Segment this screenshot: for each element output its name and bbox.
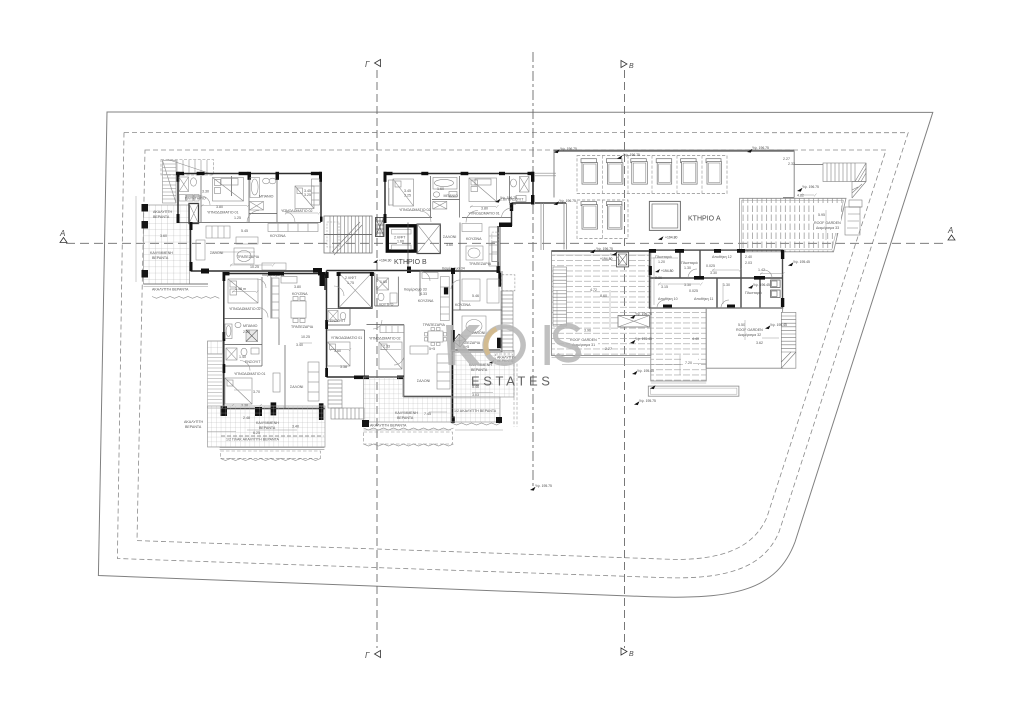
svg-text:ΕΝΣΟΥΙΤ: ΕΝΣΟΥΙΤ bbox=[245, 360, 261, 364]
svg-text:0.025: 0.025 bbox=[706, 264, 715, 268]
svg-text:5.45: 5.45 bbox=[241, 229, 248, 233]
svg-text:ΛΟΥΤΡΟ: ΛΟΥΤΡΟ bbox=[379, 303, 394, 307]
svg-text:ΥΠΝΟΔΩΜΑΤΙΟ 01: ΥΠΝΟΔΩΜΑΤΙΟ 01 bbox=[468, 212, 500, 216]
svg-text:5.95: 5.95 bbox=[818, 213, 825, 217]
svg-text:ΤΡΑΠΕΖΑΡΙΑ: ΤΡΑΠΕΖΑΡΙΑ bbox=[237, 255, 260, 259]
svg-text:Γ: Γ bbox=[365, 651, 370, 660]
svg-text:ΒΕΡΑΝΤΑ: ΒΕΡΑΝΤΑ bbox=[397, 416, 414, 420]
svg-text:2.33: 2.33 bbox=[383, 345, 390, 349]
svg-text:3.96: 3.96 bbox=[584, 329, 591, 333]
svg-text:Υψ. 196.75: Υψ. 196.75 bbox=[559, 199, 576, 203]
svg-text:ΒΕΡΑΝΤΑ: ΒΕΡΑΝΤΑ bbox=[152, 256, 169, 260]
svg-text:1.25: 1.25 bbox=[234, 216, 241, 220]
svg-text:Υψ. 196.75: Υψ. 196.75 bbox=[596, 247, 613, 251]
svg-text:ΚΟΥΖΙΝΑ: ΚΟΥΖΙΝΑ bbox=[455, 303, 471, 307]
svg-text:Υψ. 195.75: Υψ. 195.75 bbox=[639, 399, 656, 403]
svg-text:ΣΑΛΟΝΙ: ΣΑΛΟΝΙ bbox=[443, 235, 456, 239]
svg-text:1.60: 1.60 bbox=[397, 240, 404, 244]
svg-text:ΥΠΝΟΔΩΜΑΤΙΟ 01: ΥΠΝΟΔΩΜΑΤΙΟ 01 bbox=[207, 211, 239, 215]
svg-text:Υψ. 196.75: Υψ. 196.75 bbox=[635, 312, 652, 316]
svg-text:2.03: 2.03 bbox=[745, 261, 752, 265]
svg-text:1.42: 1.42 bbox=[758, 268, 765, 272]
svg-text:ΣΑΛΟΝΙ: ΣΑΛΟΝΙ bbox=[290, 385, 303, 389]
svg-text:Αποθήκη 11: Αποθήκη 11 bbox=[694, 297, 713, 301]
svg-text:ΑΚΑΛΥΠΤΗ: ΑΚΑΛΥΠΤΗ bbox=[153, 210, 173, 214]
svg-text:ΕΝΣΟΥΙΤ: ΕΝΣΟΥΙΤ bbox=[330, 319, 346, 323]
svg-text:Υψ. 196.45: Υψ. 196.45 bbox=[753, 283, 770, 287]
svg-text:2.40: 2.40 bbox=[745, 255, 752, 259]
svg-text:5.50: 5.50 bbox=[738, 323, 745, 327]
svg-text:ΑΚΑΛΥΠΤΗ ΒΕΡΑΝΤΑ: ΑΚΑΛΥΠΤΗ ΒΕΡΑΝΤΑ bbox=[152, 288, 189, 292]
svg-text:+194.30: +194.30 bbox=[379, 259, 391, 263]
svg-text:Υψ. 195.45: Υψ. 195.45 bbox=[770, 323, 787, 327]
svg-text:Αποθήκη 10: Αποθήκη 10 bbox=[658, 297, 678, 301]
svg-text:Υψ. 196.75: Υψ. 196.75 bbox=[623, 153, 640, 157]
svg-text:Πλυσταριό: Πλυσταριό bbox=[681, 261, 698, 265]
svg-text:3.15: 3.15 bbox=[661, 285, 668, 289]
svg-text:4.40: 4.40 bbox=[692, 337, 699, 341]
svg-text:ROOF GARDEN: ROOF GARDEN bbox=[814, 221, 841, 225]
svg-text:ΤΡΑΠΕΖΑΡΙΑ: ΤΡΑΠΕΖΑΡΙΑ bbox=[291, 325, 314, 329]
svg-text:+194.80: +194.80 bbox=[665, 236, 677, 240]
svg-text:ΒΕΡΑΝΤΑ: ΒΕΡΑΝΤΑ bbox=[185, 425, 202, 429]
svg-text:ΥΠΝΟΔΩΜΑΤΙΟ 01: ΥΠΝΟΔΩΜΑΤΙΟ 01 bbox=[331, 336, 363, 340]
svg-text:Αποθήκη 12: Αποθήκη 12 bbox=[712, 255, 732, 259]
svg-text:ΚΟΥΖΙΝΑ: ΚΟΥΖΙΝΑ bbox=[292, 292, 308, 296]
svg-text:3.80: 3.80 bbox=[294, 285, 301, 289]
svg-text:3.80: 3.80 bbox=[481, 207, 488, 211]
svg-text:ΚΟΥΖΙΝΑ: ΚΟΥΖΙΝΑ bbox=[418, 299, 434, 303]
svg-text:ΜΠΑΝΙΟ: ΜΠΑΝΙΟ bbox=[243, 324, 258, 328]
svg-text:2.25: 2.25 bbox=[243, 330, 250, 334]
svg-text:1.75: 1.75 bbox=[347, 281, 354, 285]
svg-text:2.27: 2.27 bbox=[783, 157, 790, 161]
svg-text:ΒΕΡΑΝΤΑ: ΒΕΡΑΝΤΑ bbox=[471, 368, 488, 372]
svg-text:Πλυσταριό: Πλυσταριό bbox=[745, 291, 762, 295]
svg-text:1.40: 1.40 bbox=[239, 355, 246, 359]
svg-text:8.60: 8.60 bbox=[600, 294, 607, 298]
svg-text:B: B bbox=[629, 651, 634, 658]
svg-text:Υψ. 196.75: Υψ. 196.75 bbox=[560, 147, 577, 151]
svg-text:Υψ. 195.75: Υψ. 195.75 bbox=[535, 484, 552, 488]
svg-text:ΜΠΑΝΙΟ: ΜΠΑΝΙΟ bbox=[444, 194, 459, 198]
svg-text:2.48: 2.48 bbox=[243, 416, 250, 420]
svg-text:3.25: 3.25 bbox=[304, 193, 311, 197]
svg-text:ΥΠΝΟΔΩΜΑΤΙΟ 02: ΥΠΝΟΔΩΜΑΤΙΟ 02 bbox=[229, 307, 261, 311]
svg-text:1/2 ΑΚΑΛΥΠΤΗ ΒΕΡΑΝΤΑ: 1/2 ΑΚΑΛΥΠΤΗ ΒΕΡΑΝΤΑ bbox=[454, 409, 497, 413]
svg-text:ΒΕΡΑΝΤΑ: ΒΕΡΑΝΤΑ bbox=[153, 215, 170, 219]
svg-text:2.36: 2.36 bbox=[655, 276, 662, 280]
svg-text:ΠΛΥΝΤΗΡΙΟ: ΠΛΥΝΤΗΡΙΟ bbox=[185, 197, 206, 201]
svg-text:5+5: 5+5 bbox=[429, 347, 435, 351]
svg-text:7.20: 7.20 bbox=[685, 361, 692, 365]
svg-text:Υψ. 195.45: Υψ. 195.45 bbox=[635, 337, 652, 341]
svg-text:3.60: 3.60 bbox=[446, 243, 453, 247]
svg-text:ΤΡΑΠΕΖΑΡΙΑ: ΤΡΑΠΕΖΑΡΙΑ bbox=[423, 323, 446, 327]
svg-text:1.20: 1.20 bbox=[658, 260, 665, 264]
svg-text:ΒΕΡΑΝΤΑ: ΒΕΡΑΝΤΑ bbox=[259, 426, 276, 430]
svg-text:5.30: 5.30 bbox=[509, 202, 516, 206]
svg-text:6.25: 6.25 bbox=[253, 431, 260, 435]
svg-text:5.46: 5.46 bbox=[472, 294, 479, 298]
svg-text:Υψ. 196.75: Υψ. 196.75 bbox=[802, 185, 819, 189]
svg-text:B: B bbox=[629, 63, 634, 70]
svg-text:+194.80: +194.80 bbox=[661, 269, 673, 273]
svg-text:3.03: 3.03 bbox=[472, 393, 479, 397]
svg-text:ΥΠΝΟΔΩΜΑΤΙΟ 02: ΥΠΝΟΔΩΜΑΤΙΟ 02 bbox=[399, 208, 431, 212]
svg-text:1.30: 1.30 bbox=[684, 266, 691, 270]
svg-text:4.72: 4.72 bbox=[590, 288, 597, 292]
svg-text:0.025: 0.025 bbox=[689, 289, 698, 293]
svg-text:ΣΑΛΟΝΙ: ΣΑΛΟΝΙ bbox=[417, 379, 430, 383]
svg-text:3.40: 3.40 bbox=[296, 343, 303, 347]
svg-text:Πλυσταριό: Πλυσταριό bbox=[655, 255, 672, 259]
svg-text:3.38: 3.38 bbox=[340, 365, 347, 369]
svg-text:2 ΛΙΦΤ: 2 ΛΙΦΤ bbox=[345, 276, 357, 280]
svg-text:ΚΤΗΡΙΟ B: ΚΤΗΡΙΟ B bbox=[394, 259, 427, 266]
svg-text:ΚΟΥΖΙΝΑ: ΚΟΥΖΙΝΑ bbox=[270, 234, 286, 238]
svg-text:1.65: 1.65 bbox=[380, 280, 387, 284]
svg-text:3.30: 3.30 bbox=[684, 283, 691, 287]
svg-text:Υψ. 196.75: Υψ. 196.75 bbox=[500, 196, 517, 200]
svg-text:1.60: 1.60 bbox=[437, 187, 444, 191]
svg-text:ΑΚΑΛΥΠΤΗ ΒΕΡΑΝΤΑ: ΑΚΑΛΥΠΤΗ ΒΕΡΑΝΤΑ bbox=[370, 424, 407, 428]
svg-text:Υψ. 195.45: Υψ. 195.45 bbox=[793, 260, 810, 264]
svg-text:3.62: 3.62 bbox=[756, 341, 763, 345]
svg-text:ΚΑΛΥΜΜΕΝΗ: ΚΑΛΥΜΜΕΝΗ bbox=[395, 411, 418, 415]
svg-text:Διαμέρισμα 33: Διαμέρισμα 33 bbox=[816, 226, 839, 230]
svg-text:ΤΡΑΠΕΖΑΡΙΑ: ΤΡΑΠΕΖΑΡΙΑ bbox=[469, 262, 492, 266]
svg-text:3.45: 3.45 bbox=[404, 189, 411, 193]
svg-text:1.30: 1.30 bbox=[723, 283, 730, 287]
svg-text:ROOF GARDEN: ROOF GARDEN bbox=[736, 328, 763, 332]
svg-text:ΥΠΝΟΔΩΜΑΤΙΟ 02: ΥΠΝΟΔΩΜΑΤΙΟ 02 bbox=[281, 209, 313, 213]
svg-text:10.25: 10.25 bbox=[250, 265, 259, 269]
svg-text:Γ: Γ bbox=[365, 60, 370, 69]
svg-text:7.45: 7.45 bbox=[424, 412, 431, 416]
svg-text:4.12: 4.12 bbox=[797, 194, 804, 198]
svg-text:ΚΑΛΥΜΜΕΝΗ: ΚΑΛΥΜΜΕΝΗ bbox=[150, 251, 173, 255]
svg-text:Υψ. 196.75: Υψ. 196.75 bbox=[752, 146, 769, 150]
svg-text:A: A bbox=[59, 229, 65, 238]
svg-text:Υψ. 195.45: Υψ. 195.45 bbox=[637, 369, 654, 373]
svg-text:10.25: 10.25 bbox=[301, 335, 310, 339]
svg-text:3.48 m: 3.48 m bbox=[235, 287, 246, 291]
svg-text:3.30: 3.30 bbox=[710, 271, 717, 275]
svg-text:ESTATES: ESTATES bbox=[471, 374, 554, 389]
svg-text:ΚΑΛΥΜΜΕΝΗ: ΚΑΛΥΜΜΕΝΗ bbox=[256, 421, 279, 425]
svg-text:διαμέρισμα 33: διαμέρισμα 33 bbox=[404, 288, 427, 292]
svg-text:ROOF GARDEN: ROOF GARDEN bbox=[570, 338, 597, 342]
svg-text:+194.80: +194.80 bbox=[600, 257, 612, 261]
svg-text:A: A bbox=[947, 226, 953, 235]
svg-text:ΚΟΥΖΙΝΑ: ΚΟΥΖΙΝΑ bbox=[466, 237, 482, 241]
svg-text:ΜΠΑΝΙΟ: ΜΠΑΝΙΟ bbox=[259, 195, 274, 199]
svg-text:ΣΑΛΟΝΙ: ΣΑΛΟΝΙ bbox=[210, 251, 223, 255]
svg-text:3.30: 3.30 bbox=[202, 190, 209, 194]
svg-text:4.33: 4.33 bbox=[420, 292, 427, 296]
svg-text:3.70: 3.70 bbox=[253, 390, 260, 394]
svg-text:ΑΚΑΛΥΠΤΗ: ΑΚΑΛΥΠΤΗ bbox=[184, 420, 204, 424]
svg-text:3.25: 3.25 bbox=[404, 194, 411, 198]
svg-text:2.27: 2.27 bbox=[605, 347, 612, 351]
svg-text:3.40: 3.40 bbox=[292, 425, 299, 429]
svg-text:ΚΤΗΡΙΟ A: ΚΤΗΡΙΟ A bbox=[688, 216, 721, 223]
svg-text:ΥΠΝΟΔΩΜΑΤΙΟ 01: ΥΠΝΟΔΩΜΑΤΙΟ 01 bbox=[234, 372, 266, 376]
svg-text:3.60: 3.60 bbox=[160, 234, 167, 238]
svg-text:ΥΠΝΟΔΩΜΑΤΙΟ 02: ΥΠΝΟΔΩΜΑΤΙΟ 02 bbox=[369, 337, 401, 341]
svg-text:1/2 ΠΛΑΚ ΑΚΑΛΥΠΤΗ ΒΕΡΑΝΤΑ: 1/2 ΠΛΑΚ ΑΚΑΛΥΠΤΗ ΒΕΡΑΝΤΑ bbox=[226, 438, 280, 442]
svg-text:Διαμέρισμα 32: Διαμέρισμα 32 bbox=[738, 333, 761, 337]
svg-text:2.32: 2.32 bbox=[788, 162, 795, 166]
